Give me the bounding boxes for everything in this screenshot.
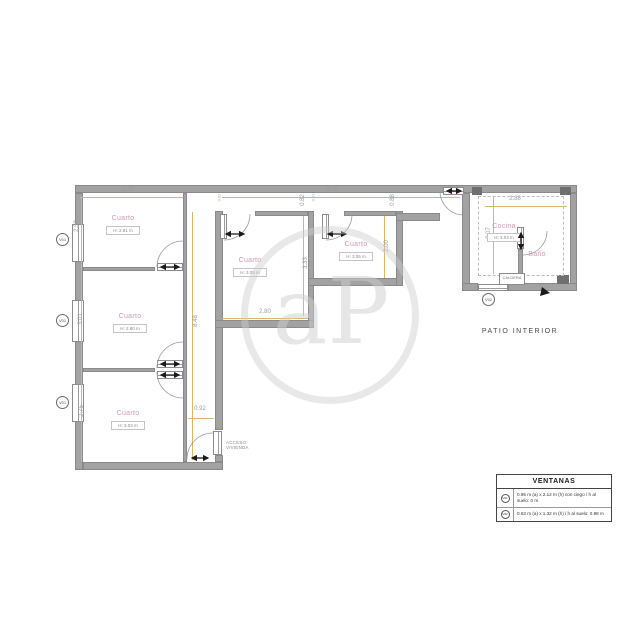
legend-title: VENTANAS	[497, 475, 611, 489]
door-arc	[224, 214, 250, 240]
legend-row-description: 0.95 m (a) x 2.12 m (h) con ciego / h al…	[514, 489, 611, 507]
legend-window-tag-v01: V01	[501, 494, 510, 503]
door-arc	[157, 241, 183, 267]
floor-plan: V01 V01 V01 V02 3.18 8.78 2.88 2.58 3.01…	[0, 0, 640, 640]
legend-icon-cell: V01	[497, 489, 514, 507]
watermark-logo: aP	[256, 238, 406, 385]
legend-window-tag-label: V02	[502, 512, 507, 516]
door-arc	[523, 231, 547, 255]
legend-row-description: 0.63 m (a) x 1.32 m (h) / h al suelo: 0.…	[514, 508, 611, 520]
door-arc	[440, 191, 464, 215]
legend-row-v01: V01 0.95 m (a) x 2.12 m (h) con ciego / …	[497, 489, 611, 508]
drain-arrow-icon	[540, 287, 550, 296]
legend-icon-cell: V02	[497, 508, 514, 520]
door-arc	[157, 372, 183, 398]
windows-legend-table: VENTANAS V01 0.95 m (a) x 2.12 m (h) con…	[496, 474, 612, 522]
legend-row-v02: V02 0.63 m (a) x 1.32 m (h) / h al suelo…	[497, 508, 611, 520]
legend-window-tag-label: V01	[502, 496, 507, 500]
door-arc	[187, 433, 213, 459]
legend-window-tag-v02: V02	[501, 510, 510, 519]
